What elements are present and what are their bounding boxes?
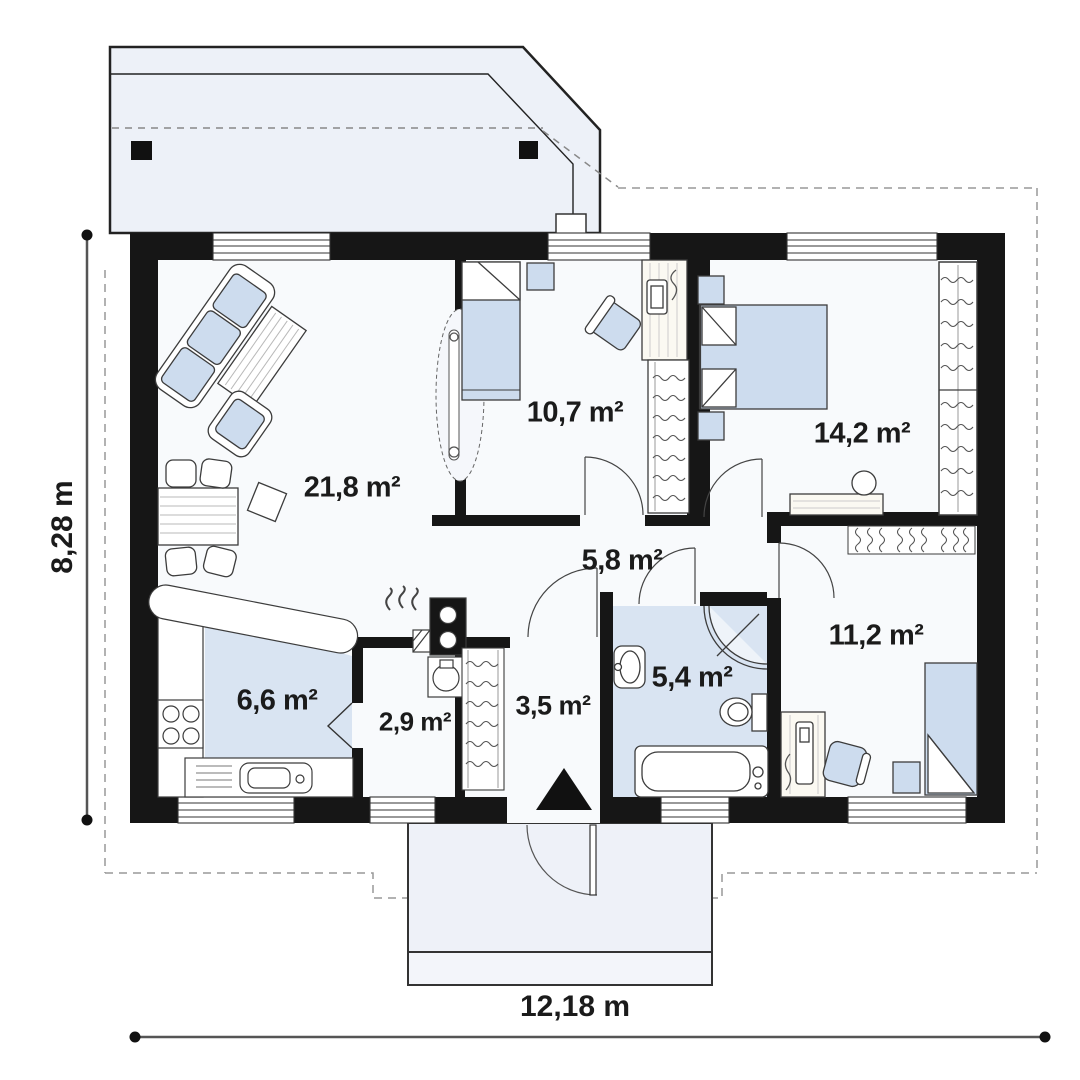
bedside-table xyxy=(527,263,554,290)
terrace xyxy=(110,47,618,233)
terrace-window xyxy=(213,233,330,260)
kitchen-window xyxy=(178,797,294,823)
stove xyxy=(158,700,203,748)
entry-wardrobe xyxy=(462,648,504,790)
room-label-hall: 5,8 m² xyxy=(582,545,663,578)
dining-table xyxy=(158,488,238,545)
sink-counter xyxy=(185,758,353,797)
mirror xyxy=(852,471,876,495)
terrace-column xyxy=(131,141,152,160)
entry-door-leaf xyxy=(590,825,596,895)
dimension-height: 8,28 m xyxy=(46,480,80,573)
dimension-width: 12,18 m xyxy=(520,990,630,1024)
washbasin xyxy=(614,646,645,688)
room-label-bedroom-right: 14,2 m² xyxy=(814,418,910,451)
room-label-entry: 3,5 m² xyxy=(515,691,590,722)
room-label-bedroom-bottom: 11,2 m² xyxy=(829,620,924,653)
bathroom-window xyxy=(661,797,729,823)
bedroom-bottom-window xyxy=(848,797,966,823)
bedroom-top-window xyxy=(548,233,650,260)
bed-single xyxy=(462,262,520,400)
room-label-living: 21,8 m² xyxy=(304,472,400,505)
nightstand xyxy=(698,276,724,304)
bathtub xyxy=(635,746,768,797)
bedroom-right-window xyxy=(787,233,937,260)
room-label-pantry: 2,9 m² xyxy=(379,707,451,738)
vent-box xyxy=(413,630,430,652)
terrace-column xyxy=(519,141,538,159)
room-label-kitchen: 6,6 m² xyxy=(237,685,318,718)
floor-plan-canvas: 21,8 m² 10,7 m² 14,2 m² 5,8 m² 11,2 m² 6… xyxy=(0,0,1080,1080)
nightstand xyxy=(698,412,724,440)
pantry-window xyxy=(370,797,435,823)
desk xyxy=(642,260,687,360)
wardrobe xyxy=(939,262,977,515)
boiler xyxy=(428,657,464,697)
bed-double xyxy=(700,305,827,409)
bed-single xyxy=(925,663,977,795)
room-label-bathroom: 5,4 m² xyxy=(652,662,733,695)
chimney xyxy=(556,214,586,234)
wardrobe xyxy=(648,360,689,513)
desk xyxy=(781,712,825,797)
nightstand xyxy=(893,762,920,793)
coat-rail xyxy=(848,526,975,554)
entrance-porch xyxy=(408,823,712,985)
room-label-bedroom-top: 10,7 m² xyxy=(527,397,623,430)
floor-plan-drawing xyxy=(0,0,1080,1080)
